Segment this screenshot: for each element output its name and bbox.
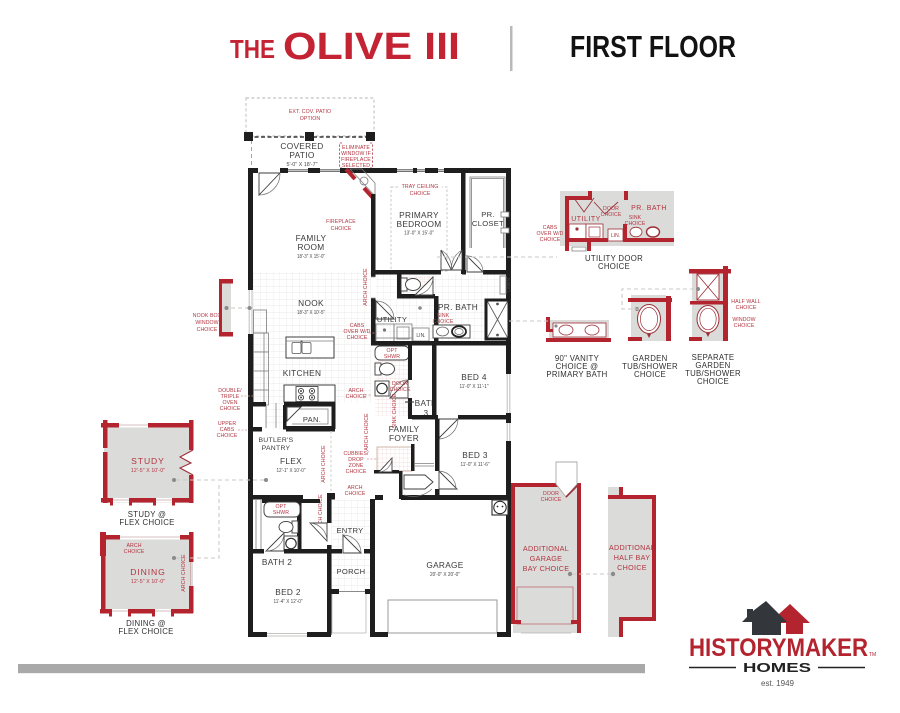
svg-text:FOYER: FOYER <box>389 433 419 443</box>
svg-text:CHOICE: CHOICE <box>634 370 666 379</box>
svg-text:CHOICE: CHOICE <box>124 549 145 555</box>
svg-text:CHOICE: CHOICE <box>390 387 411 393</box>
svg-text:12'-1" X 10'-0": 12'-1" X 10'-0" <box>277 468 306 474</box>
svg-text:DINING: DINING <box>130 567 165 577</box>
svg-text:FLEX CHOICE: FLEX CHOICE <box>119 518 174 527</box>
svg-text:FIREPLACE: FIREPLACE <box>326 219 356 225</box>
svg-text:20'-0" X 20'-0": 20'-0" X 20'-0" <box>430 572 460 578</box>
svg-text:BED 4: BED 4 <box>461 372 487 382</box>
svg-text:EXT. COV. PATIO: EXT. COV. PATIO <box>289 109 331 115</box>
svg-text:GARAGE: GARAGE <box>530 554 563 563</box>
svg-text:PR.: PR. <box>481 210 495 219</box>
svg-text:CHOICE: CHOICE <box>220 406 241 412</box>
svg-text:NOOK: NOOK <box>298 298 324 308</box>
svg-text:BED 2: BED 2 <box>275 587 301 597</box>
svg-text:CHOICE: CHOICE <box>410 191 431 197</box>
svg-text:est. 1949: est. 1949 <box>761 678 794 688</box>
svg-text:FLEX CHOICE: FLEX CHOICE <box>118 627 173 636</box>
svg-text:11'-0" X 11'-6": 11'-0" X 11'-6" <box>461 462 490 468</box>
svg-text:CHOICE: CHOICE <box>346 469 367 475</box>
svg-text:18'-3" X 10'-5": 18'-3" X 10'-5" <box>297 310 325 316</box>
svg-text:CHOICE: CHOICE <box>540 237 561 243</box>
svg-text:12'-5" X 10'-0": 12'-5" X 10'-0" <box>131 579 165 585</box>
svg-text:CHOICE: CHOICE <box>217 433 238 439</box>
svg-text:LIN.: LIN. <box>416 333 425 339</box>
svg-text:BEDROOM: BEDROOM <box>397 219 442 229</box>
svg-text:HOMES: HOMES <box>743 661 811 675</box>
svg-text:PORCH: PORCH <box>337 567 366 576</box>
svg-text:PR. BATH: PR. BATH <box>438 302 478 312</box>
svg-text:CHOICE: CHOICE <box>736 305 757 311</box>
svg-text:CHOICE: CHOICE <box>697 377 729 386</box>
svg-text:13'-0" X 15'-0": 13'-0" X 15'-0" <box>404 231 434 237</box>
svg-text:FIRST FLOOR: FIRST FLOOR <box>570 29 736 64</box>
svg-text:UTILITY: UTILITY <box>571 216 601 223</box>
svg-text:CHOICE: CHOICE <box>541 497 562 503</box>
svg-text:THE: THE <box>230 34 275 64</box>
svg-text:FLEX: FLEX <box>280 456 302 466</box>
svg-text:ARCH CHOICE: ARCH CHOICE <box>321 445 327 483</box>
svg-text:NOOK BOX: NOOK BOX <box>193 313 222 319</box>
svg-text:TRAY CEILING: TRAY CEILING <box>402 184 439 190</box>
svg-text:CHOICE: CHOICE <box>734 323 755 329</box>
svg-text:LIN.: LIN. <box>611 233 620 239</box>
svg-text:SHWR: SHWR <box>273 510 289 516</box>
svg-text:TM: TM <box>869 652 876 658</box>
svg-text:CHOICE: CHOICE <box>197 327 218 333</box>
svg-text:CHOICE: CHOICE <box>601 212 622 218</box>
svg-text:WINDOW: WINDOW <box>195 320 218 326</box>
svg-text:PATIO: PATIO <box>289 150 314 160</box>
svg-text:HISTORYMAKER: HISTORYMAKER <box>689 634 868 662</box>
svg-text:ADDITIONAL: ADDITIONAL <box>609 543 655 552</box>
svg-text:5'-0" X 18'-7": 5'-0" X 18'-7" <box>287 162 318 168</box>
svg-text:11'-4" X 12'-0": 11'-4" X 12'-0" <box>274 599 303 605</box>
svg-text:CHOICE: CHOICE <box>331 226 352 232</box>
svg-text:UTILITY: UTILITY <box>377 315 407 324</box>
svg-text:BATH 2: BATH 2 <box>262 557 292 567</box>
svg-text:SHWR: SHWR <box>384 354 400 360</box>
svg-text:PRIMARY BATH: PRIMARY BATH <box>546 370 607 379</box>
svg-text:GARAGE: GARAGE <box>426 560 463 570</box>
svg-text:BAY CHOICE: BAY CHOICE <box>523 564 570 573</box>
svg-text:PANTRY: PANTRY <box>262 445 291 452</box>
svg-text:STUDY: STUDY <box>131 456 165 466</box>
svg-text:ARCH CHOICE: ARCH CHOICE <box>181 554 187 592</box>
svg-text:CHOICE: CHOICE <box>598 262 630 271</box>
svg-text:11'-0" X 11'-1": 11'-0" X 11'-1" <box>460 384 489 390</box>
svg-text:OLIVE III: OLIVE III <box>283 26 460 68</box>
svg-text:CHOICE: CHOICE <box>625 221 646 227</box>
svg-text:ADDITIONAL: ADDITIONAL <box>523 544 569 553</box>
svg-text:CHOICE: CHOICE <box>345 491 366 497</box>
svg-text:12'-5" X 10'-0": 12'-5" X 10'-0" <box>131 468 165 474</box>
svg-text:KITCHEN: KITCHEN <box>283 368 322 378</box>
svg-text:ARCH CHOICE: ARCH CHOICE <box>364 413 370 451</box>
svg-text:ROOM: ROOM <box>297 242 324 252</box>
svg-text:BED 3: BED 3 <box>462 450 488 460</box>
svg-text:CHOICE: CHOICE <box>433 319 454 325</box>
svg-text:18'-3" X 15'-0": 18'-3" X 15'-0" <box>297 254 325 260</box>
svg-text:BUTLER'S: BUTLER'S <box>258 437 293 444</box>
svg-text:PAN.: PAN. <box>303 415 321 424</box>
svg-text:LINEN: LINEN <box>506 278 511 292</box>
svg-text:OPTION: OPTION <box>300 116 321 122</box>
svg-text:ENTRY: ENTRY <box>336 526 363 535</box>
svg-text:CLOSET: CLOSET <box>472 219 504 228</box>
svg-text:ARCH CHOICE: ARCH CHOICE <box>363 268 369 306</box>
svg-text:HALF BAY: HALF BAY <box>614 553 651 562</box>
svg-text:CHOICE: CHOICE <box>347 335 368 341</box>
svg-text:CHOICE: CHOICE <box>346 394 367 400</box>
svg-text:CHOICE: CHOICE <box>617 563 647 572</box>
svg-text:PR. BATH: PR. BATH <box>631 205 667 212</box>
